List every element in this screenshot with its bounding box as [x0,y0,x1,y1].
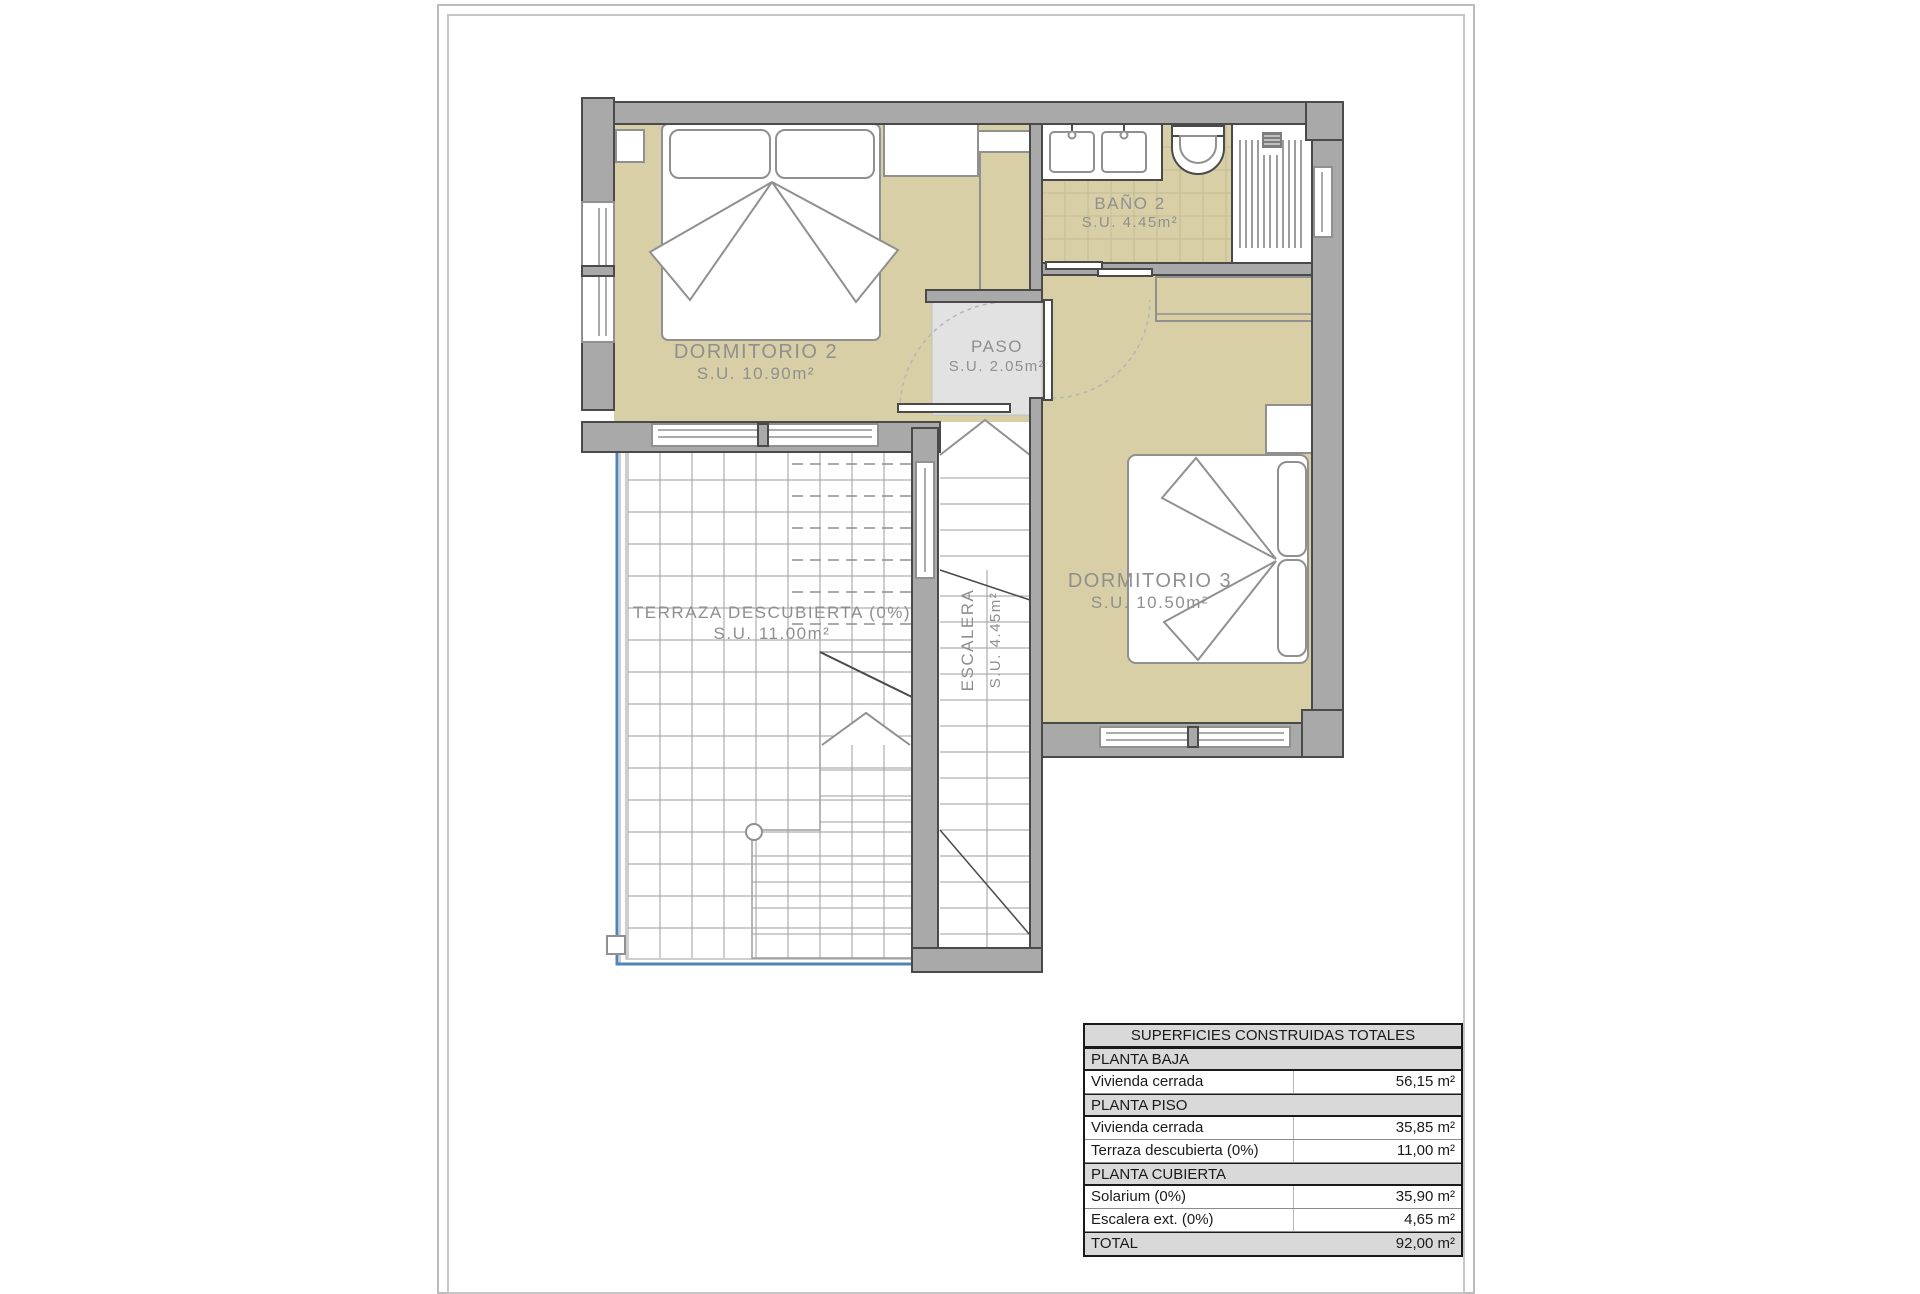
dormitorio2-name-label: DORMITORIO 2 [674,341,838,363]
terrace-railing-line [617,412,924,964]
paso-area-label: S.U. 2.05m² [949,358,1046,375]
table-row: Solarium (0%) 35,90 m² [1085,1186,1461,1209]
areas-table-title-row: SUPERFICIES CONSTRUIDAS TOTALES [1085,1025,1461,1048]
row-value: 4,65 m² [1293,1209,1461,1231]
corner-post-icon [607,936,625,954]
row-label: Escalera ext. (0%) [1085,1209,1293,1231]
table-row-planta-cubierta: PLANTA CUBIERTA [1085,1163,1461,1186]
shower-icon [1232,124,1312,263]
window-right-wall [1314,167,1332,237]
row-value: 92,00 m² [1293,1233,1461,1255]
row-label: Vivienda cerrada [1085,1117,1293,1139]
section-label: PLANTA PISO [1085,1095,1461,1115]
escalera-name-label: ESCALERA [958,589,977,692]
areas-table-title: SUPERFICIES CONSTRUIDAS TOTALES [1127,1025,1419,1046]
table-row: Vivienda cerrada 35,85 m² [1085,1117,1461,1140]
bano2-area-label: S.U. 4.45m² [1082,214,1179,231]
row-value: 56,15 m² [1293,1071,1461,1093]
row-label: TOTAL [1085,1233,1293,1255]
row-label: Terraza descubierta (0%) [1085,1140,1293,1162]
dormitorio2-area-label: S.U. 10.90m² [697,364,815,383]
nightstand-dorm3-icon [1266,405,1312,453]
table-row-planta-baja: PLANTA BAJA [1085,1048,1461,1071]
toilet-icon [1172,126,1224,174]
dormitorio3-area-label: S.U. 10.50m² [1091,593,1209,612]
areas-table: SUPERFICIES CONSTRUIDAS TOTALES PLANTA B… [1083,1023,1463,1257]
bed-icon [650,124,898,340]
row-label: Solarium (0%) [1085,1186,1293,1208]
row-value: 35,90 m² [1293,1186,1461,1208]
terrace-stair-notch [752,652,916,958]
bano2-name-label: BAÑO 2 [1094,194,1165,213]
escalera-area-label: S.U. 4.45m² [987,592,1004,689]
dormitorio3-name-label: DORMITORIO 3 [1068,570,1232,592]
stair-direction-arrow-icon [822,713,910,745]
row-label: Vivienda cerrada [1085,1071,1293,1093]
table-row: Escalera ext. (0%) 4,65 m² [1085,1209,1461,1232]
sink-icon [1042,124,1162,180]
table-row: Vivienda cerrada 56,15 m² [1085,1071,1461,1094]
stairs-icon [940,420,1030,948]
wardrobe-dorm3-icon [1156,277,1312,321]
window-left [582,202,614,342]
window-stair [916,462,934,578]
section-label: PLANTA CUBIERTA [1085,1164,1461,1184]
page: { "plan": { "rooms": { "dormitorio2": { … [0,0,1920,1280]
section-label: PLANTA BAJA [1085,1049,1461,1069]
terraza-name-label: TERRAZA DESCUBIERTA (0%) [633,603,911,622]
table-row-planta-piso: PLANTA PISO [1085,1094,1461,1117]
window-dorm2-bottom [652,424,878,446]
row-value: 35,85 m² [1293,1117,1461,1139]
stair-cut-line [820,652,912,697]
window-dorm3-bottom [1100,727,1290,747]
nightstand-icon [616,130,644,162]
terraza-area-label: S.U. 11.00m² [714,624,831,643]
bench-icon [884,124,978,176]
stair-post-icon [746,824,762,840]
room-terraza: TERRAZA DESCUBIERTA (0%) S.U. 11.00m² [607,412,924,965]
floor-plan: TERRAZA DESCUBIERTA (0%) S.U. 11.00m² [0,0,1920,1280]
row-value: 11,00 m² [1293,1140,1461,1162]
bed-dorm3-icon [1128,455,1308,663]
table-row-total: TOTAL 92,00 m² [1085,1232,1461,1255]
table-row: Terraza descubierta (0%) 11,00 m² [1085,1140,1461,1163]
paso-name-label: PASO [971,337,1023,356]
